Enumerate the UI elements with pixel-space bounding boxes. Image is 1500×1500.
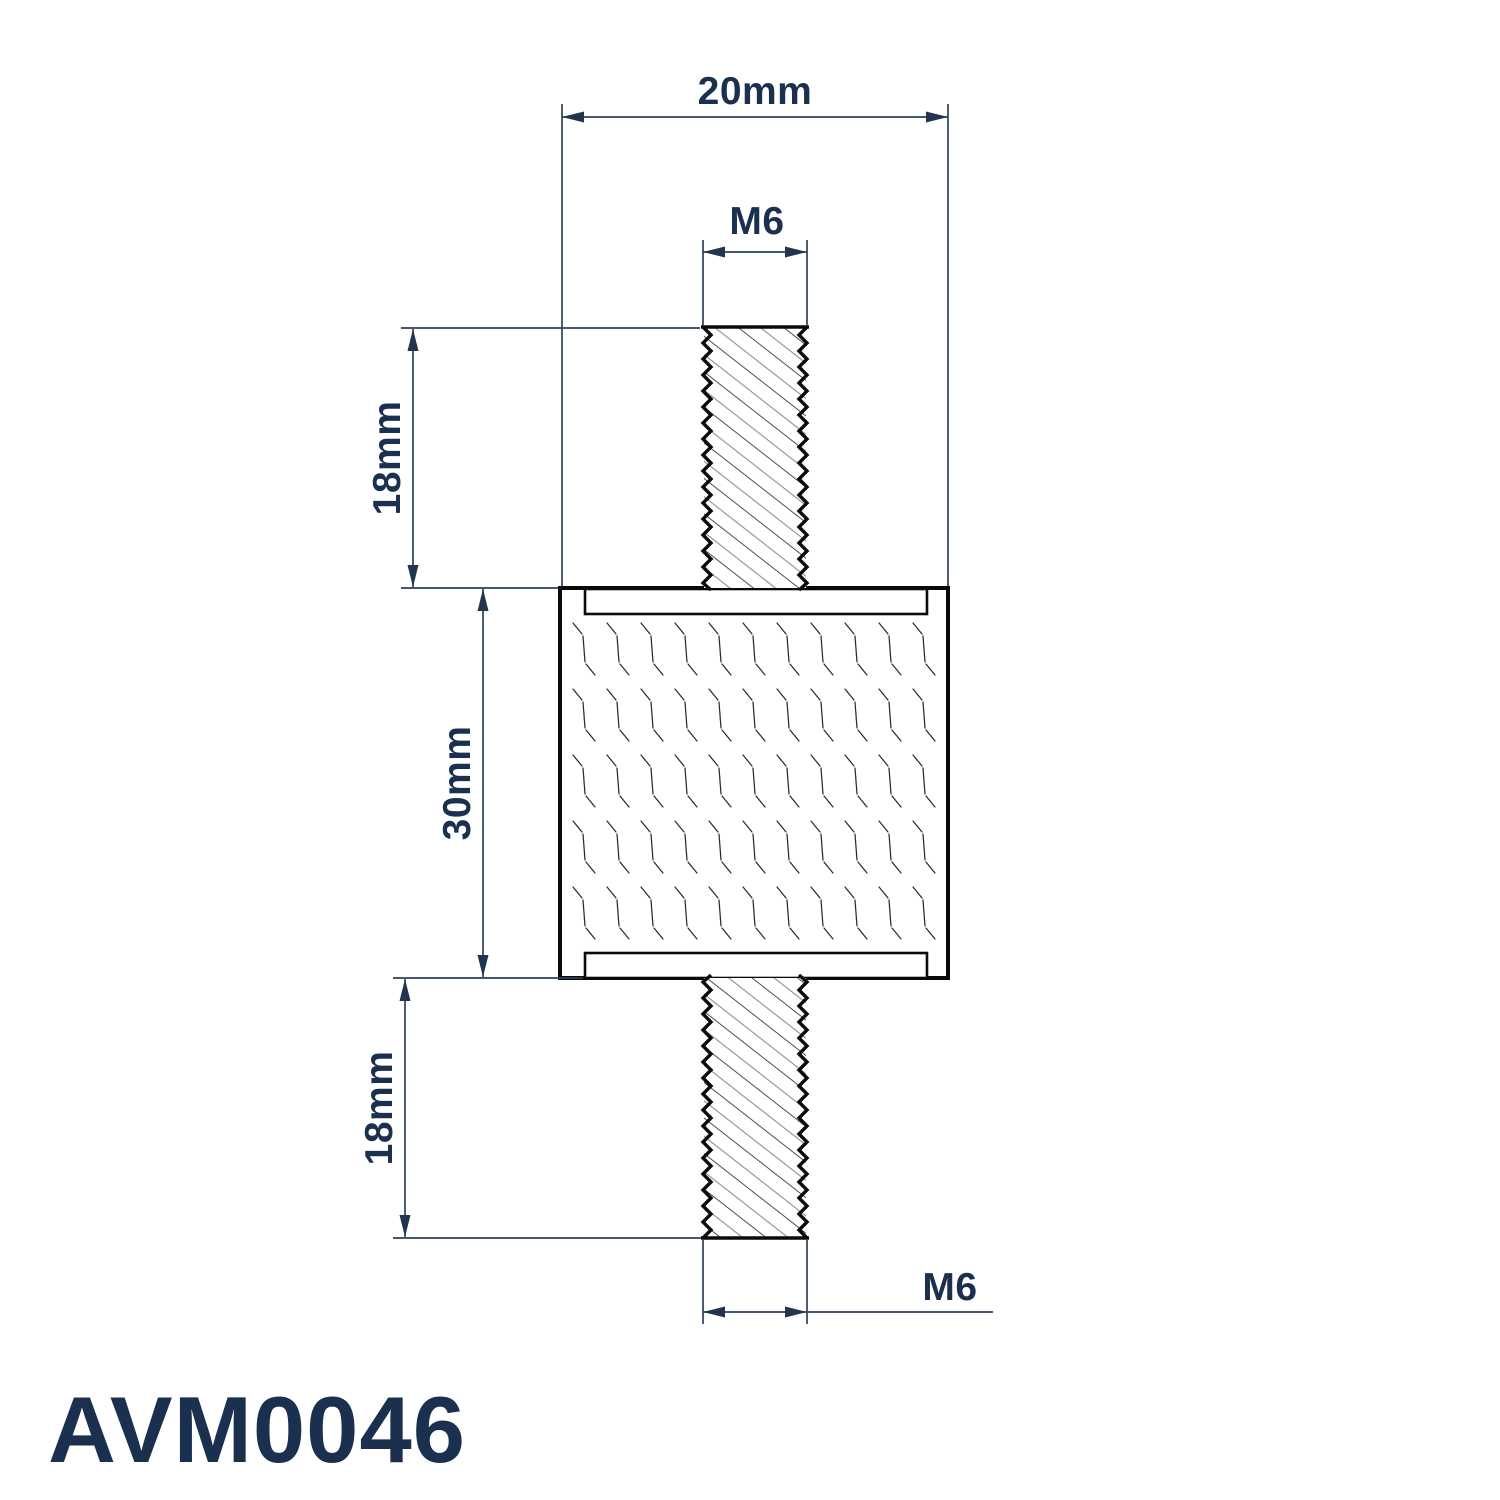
- bottom-stud-length-label: 18mm: [358, 1051, 401, 1166]
- body-height-label: 30mm: [436, 726, 479, 841]
- arrow-right-icon: [785, 247, 807, 258]
- bottom-flange-plate: [585, 953, 927, 978]
- overall-width-label: 20mm: [698, 70, 813, 113]
- part-number: AVM0046: [48, 1377, 466, 1482]
- dimension-top-stud-length: 18mm: [366, 328, 700, 588]
- dimension-top-thread: M6: [703, 200, 807, 326]
- technical-drawing: 20mm M6 18mm 30mm 18mm: [0, 0, 1500, 1500]
- arrow-right-icon: [926, 112, 948, 123]
- arrow-left-icon: [703, 247, 725, 258]
- top-thread-label: M6: [729, 200, 784, 243]
- top-stud-length-label: 18mm: [366, 401, 409, 516]
- dimension-bottom-stud-length: 18mm: [358, 979, 701, 1238]
- dimension-body-height: 30mm: [393, 589, 583, 978]
- dimension-bottom-thread: M6: [703, 1240, 993, 1324]
- arrow-up-icon: [478, 589, 489, 611]
- arrow-right-icon: [785, 1307, 807, 1318]
- mount-section-view: [560, 327, 948, 1238]
- arrow-down-icon: [400, 1215, 411, 1237]
- top-threaded-stud: [701, 327, 809, 590]
- arrow-left-icon: [562, 112, 584, 123]
- bottom-thread-label: M6: [922, 1266, 977, 1309]
- bottom-threaded-stud: [701, 975, 809, 1238]
- arrow-left-icon: [703, 1307, 725, 1318]
- arrow-up-icon: [400, 979, 411, 1001]
- arrow-down-icon: [408, 565, 419, 587]
- top-flange-plate: [585, 589, 927, 614]
- arrow-down-icon: [478, 955, 489, 977]
- arrow-up-icon: [408, 329, 419, 351]
- rubber-body-texture: [563, 617, 945, 951]
